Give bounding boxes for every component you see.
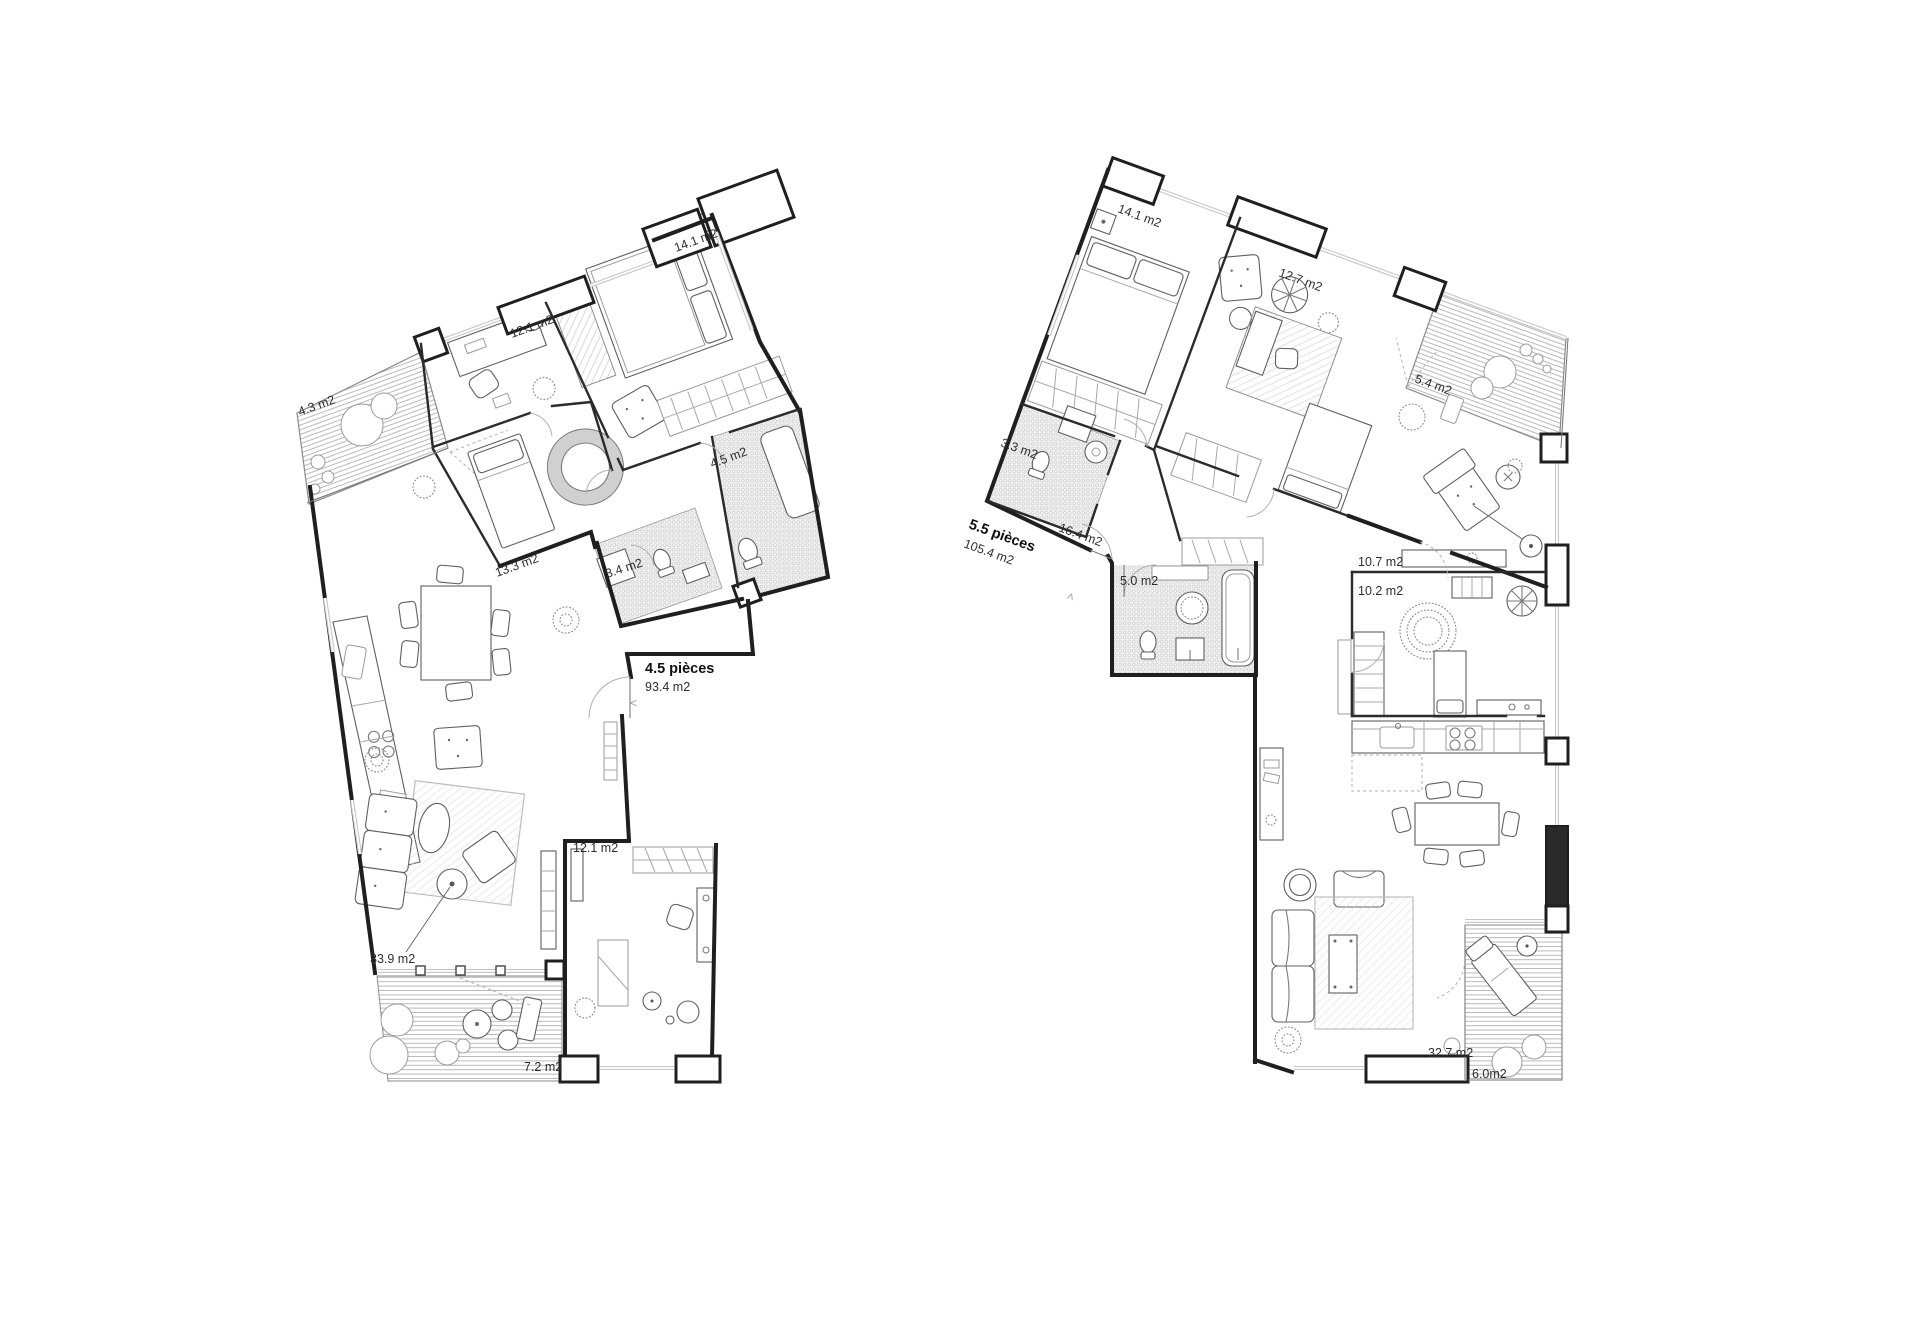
label-right-bath-main: 5.0 m2 — [1120, 574, 1158, 588]
label-left-title: 4.5 pièces — [645, 661, 714, 677]
label-left-terrace: 7.2 m2 — [524, 1060, 562, 1074]
right-room-upper-furniture — [1402, 448, 1542, 567]
right-room-lower-furniture — [1338, 577, 1541, 717]
left-balcony-region — [297, 352, 508, 504]
right-hall-wardrobe — [1182, 538, 1263, 565]
left-office-furniture — [571, 847, 715, 1024]
label-left-area: 93.4 m2 — [645, 680, 690, 694]
floor-plan-canvas: 4.3 m2 12.1 m2 14.1 m2 4.5 m2 13.3 m2 3.… — [0, 0, 1920, 1323]
right-kitchen — [1352, 721, 1544, 791]
label-right-room-lower: 10.2 m2 — [1358, 584, 1403, 598]
label-right-terrace: 6.0m2 — [1472, 1067, 1507, 1081]
plan-left: 4.3 m2 12.1 m2 14.1 m2 4.5 m2 13.3 m2 3.… — [296, 170, 828, 1082]
right-balcony-region — [1396, 291, 1566, 448]
label-left-bedroom-small: 13.3 m2 — [493, 551, 540, 580]
plan-right: 14.1 m2 12.7 m2 5.4 m2 3.3 m2 16.4 m2 5.… — [962, 158, 1568, 1082]
label-right-living: 32.7 m2 — [1428, 1046, 1473, 1060]
left-bath-large-region — [712, 408, 828, 600]
right-entry-marker-icon: < — [1063, 591, 1078, 602]
label-right-room-upper: 10.7 m2 — [1358, 555, 1403, 569]
label-right-bedroom-main: 14.1 m2 — [1116, 202, 1163, 231]
label-left-living: 33.9 m2 — [370, 952, 415, 966]
floor-plan-page: 4.3 m2 12.1 m2 14.1 m2 4.5 m2 13.3 m2 3.… — [0, 0, 1920, 1323]
left-entry-marker-icon: < — [630, 696, 637, 710]
label-left-office: 12.1 m2 — [573, 841, 618, 855]
